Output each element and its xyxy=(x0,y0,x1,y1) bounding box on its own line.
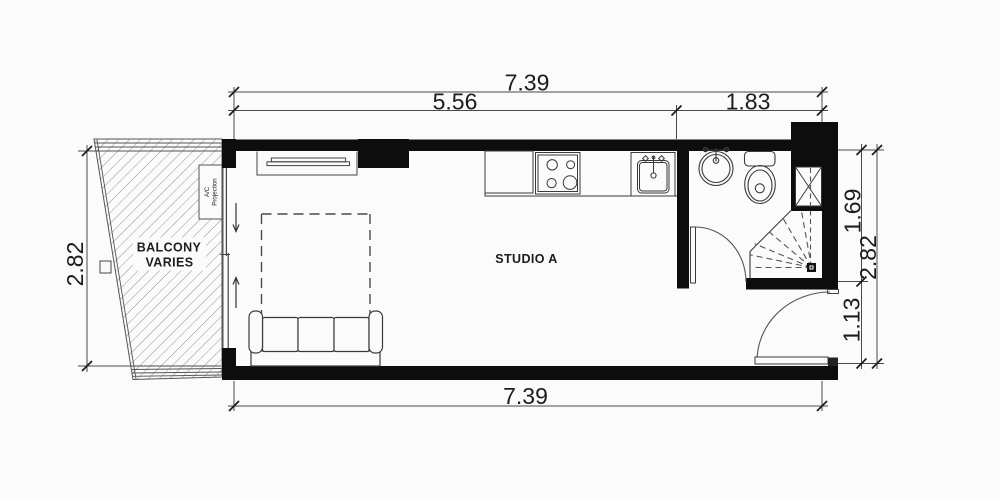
svg-text:7.39: 7.39 xyxy=(505,70,550,96)
svg-text:5.56: 5.56 xyxy=(433,89,478,115)
svg-text:1.83: 1.83 xyxy=(726,89,771,115)
svg-text:2.82: 2.82 xyxy=(855,235,881,280)
svg-text:VARIES: VARIES xyxy=(145,256,193,270)
svg-text:Projection: Projection xyxy=(212,178,219,206)
svg-text:1.13: 1.13 xyxy=(839,298,865,343)
svg-text:2.82: 2.82 xyxy=(62,242,88,287)
svg-text:STUDIO A: STUDIO A xyxy=(495,252,557,266)
svg-text:BALCONY: BALCONY xyxy=(137,241,202,255)
svg-text:A/C: A/C xyxy=(204,186,211,197)
svg-text:1.69: 1.69 xyxy=(840,189,866,234)
svg-text:7.39: 7.39 xyxy=(503,383,548,409)
